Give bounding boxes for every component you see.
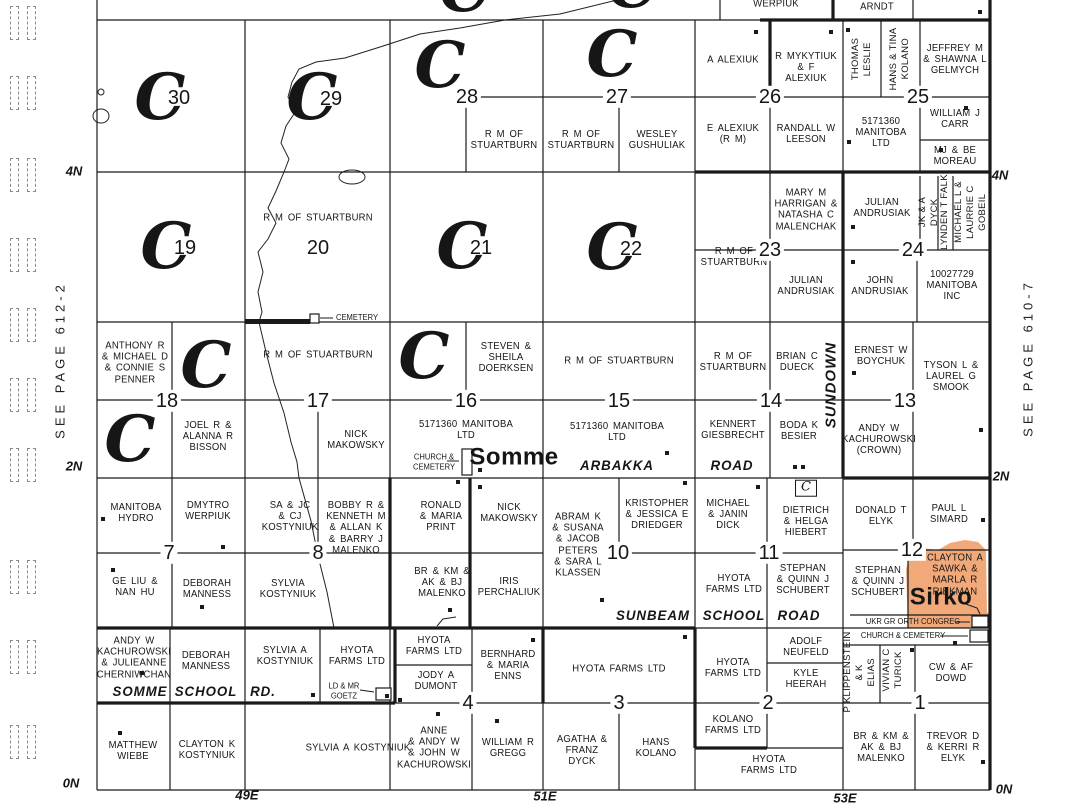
locality-label-somme: Somme xyxy=(469,445,558,472)
owner-label: DEBORAH MANNESS xyxy=(182,650,230,672)
registration-mark xyxy=(10,238,19,272)
row-label-0n-right: 0N xyxy=(996,783,1013,798)
owner-label: STEPHAN & QUINN J SCHUBERT xyxy=(776,563,830,597)
owner-label: BOBBY R & KENNETH M & ALLAN K & BARRY J … xyxy=(326,500,386,556)
owner-label: R M OF STUARTBURN xyxy=(263,349,373,360)
section-number-30: 30 xyxy=(168,87,190,109)
owner-label: STEVEN & SHEILA DOERKSEN xyxy=(479,341,534,375)
registration-mark xyxy=(10,308,19,342)
section-number-10: 10 xyxy=(604,542,632,564)
section-number-14: 14 xyxy=(757,390,785,412)
road-label-sunbeam: SUNBEAM xyxy=(616,608,690,624)
section-number-25: 25 xyxy=(904,86,932,108)
road-label-school2: SCHOOL xyxy=(175,684,238,700)
section-number-7: 7 xyxy=(160,542,177,564)
owner-label: KYLE HEERAH xyxy=(786,668,827,690)
owner-label: RONALD & MARIA PRINT xyxy=(420,500,462,534)
owner-label: JODY A DUMONT xyxy=(415,670,458,692)
registration-mark xyxy=(10,76,19,110)
owner-label: ANDY W KACHUROWSKI (CROWN) xyxy=(842,423,916,457)
owner-label: SA & JC & CJ KOSTYNIUK xyxy=(262,500,319,534)
owner-label: DMYTRO WERPIUK xyxy=(185,500,231,522)
owner-label: DEBORAH MANNESS xyxy=(183,578,231,600)
left-page-ref: SEE PAGE 612-2 xyxy=(53,281,68,439)
owner-label-goetz: LD & MR GOETZ xyxy=(329,681,360,700)
road-label-arbakka: ARBAKKA xyxy=(580,458,654,474)
owner-label: MATTHEW WIEBE xyxy=(109,740,158,762)
owner-label: HYOTA FARMS LTD xyxy=(572,663,665,674)
owner-label: R M OF STUARTBURN xyxy=(700,351,767,373)
section-number-17: 17 xyxy=(304,390,332,412)
section-number-8: 8 xyxy=(309,542,326,564)
owner-label: WILLIAM R GREGG xyxy=(482,737,534,759)
map-labels: ARNDTWERPIUKCCC30C29C28C27R M OF STUARTB… xyxy=(0,0,1071,803)
owner-label-arndt: ARNDT xyxy=(860,1,894,12)
section-number-15: 15 xyxy=(605,390,633,412)
owner-label: BR & KM & AK & BJ MALENKO xyxy=(853,731,908,765)
section-number-19: 19 xyxy=(174,237,196,259)
owner-label: MICHAEL & JANIN DICK xyxy=(706,498,750,532)
registration-mark xyxy=(27,448,36,482)
registration-mark xyxy=(27,308,36,342)
owner-label: NICK MAKOWSKY xyxy=(327,429,384,451)
registration-mark xyxy=(10,560,19,594)
owner-label: BRIAN C DUECK xyxy=(776,351,818,373)
road-label-sundown: SUNDOWN xyxy=(824,342,841,428)
registration-mark xyxy=(10,6,19,40)
section-number-18: 18 xyxy=(153,390,181,412)
row-label-0n-left: 0N xyxy=(63,777,80,792)
owner-label: WILLIAM J CARR xyxy=(930,108,980,130)
owner-label: CLAYTON K KOSTYNIUK xyxy=(179,739,236,761)
crown-c-box: C xyxy=(795,480,817,497)
owner-label: MARY M HARRIGAN & NATASHA C MALENCHAK xyxy=(775,188,838,233)
owner-label: PAUL L SIMARD xyxy=(930,503,968,525)
owner-label: 5171360 MANITOBA LTD xyxy=(856,116,907,150)
owner-label: ANDY W KACHUROWSKI & JULIEANNE CHERNIWCH… xyxy=(97,636,171,681)
registration-mark xyxy=(27,378,36,412)
owner-label: TREVOR D & KERRI R ELYK xyxy=(926,731,979,765)
owner-label: HANS & TINA KOLANO xyxy=(888,28,912,91)
owner-label: R M OF STUARTBURN xyxy=(564,355,674,366)
owner-label: KRISTOPHER & JESSICA E DRIEDGER xyxy=(625,498,689,532)
section-number-11: 11 xyxy=(756,542,783,564)
owner-label: KENNERT GIESBRECHT xyxy=(701,419,765,441)
owner-label: ANTHONY R & MICHAEL D & CONNIE S PENNER xyxy=(102,341,168,386)
section-number-4: 4 xyxy=(459,692,476,714)
owner-label: AGATHA & FRANZ DYCK xyxy=(557,734,607,768)
owner-label: VIVIAN C TURICK xyxy=(881,648,905,691)
owner-label: BR & KM & AK & BJ MALENKO xyxy=(414,566,469,600)
section-number-24: 24 xyxy=(899,239,927,261)
owner-label: CW & AF DOWD xyxy=(929,662,973,684)
col-label-49e: 49E xyxy=(235,789,258,803)
owner-label: BODA K BESIER xyxy=(780,420,818,442)
owner-label: R M OF STUARTBURN xyxy=(263,212,373,223)
owner-label: BERNHARD & MARIA ENNS xyxy=(481,649,536,683)
col-label-51e: 51E xyxy=(533,790,556,803)
right-page-ref: SEE PAGE 610-7 xyxy=(1021,279,1036,437)
owner-label: MJ & BE MOREAU xyxy=(934,145,977,167)
owner-label: SYLVIA A KOSTYNIUK xyxy=(257,645,314,667)
registration-mark xyxy=(27,158,36,192)
crown-c: C xyxy=(399,321,450,393)
section-number-12: 12 xyxy=(898,539,926,561)
owner-label: JEFFREY M & SHAWNA L GELMYCH xyxy=(923,43,986,77)
owner-label: LYNDEN T FALK xyxy=(939,174,951,250)
registration-mark xyxy=(27,76,36,110)
section-number-16: 16 xyxy=(452,390,480,412)
section-number-21: 21 xyxy=(470,237,492,259)
owner-label: WESLEY GUSHULIAK xyxy=(629,129,686,151)
registration-mark xyxy=(10,448,19,482)
owner-label: HYOTA FARMS LTD xyxy=(706,573,762,595)
owner-label: STEPHAN & QUINN J SCHUBERT xyxy=(851,565,905,599)
section-number-27: 27 xyxy=(603,86,631,108)
registration-mark xyxy=(27,640,36,674)
section-number-22: 22 xyxy=(620,238,642,260)
owner-label: ANNE & ANDY W & JOHN W KACHUROWSKI xyxy=(397,726,471,771)
registration-mark xyxy=(27,6,36,40)
section-number-23: 23 xyxy=(756,239,784,261)
section-number-1: 1 xyxy=(911,692,928,714)
owner-label: A ALEXIUK xyxy=(707,54,759,65)
owner-label: 5171360 MANITOBA LTD xyxy=(570,421,664,443)
owner-label: THOMAS LESLIE xyxy=(850,38,874,80)
owner-label: TYSON L & LAUREL G SMOOK xyxy=(924,360,979,394)
church-cemetery-label: CHURCH & CEMETERY xyxy=(413,452,455,471)
owner-label: ERNEST W BOYCHUK xyxy=(854,345,907,367)
owner-label-partial: WERPIUK xyxy=(753,0,799,10)
row-label-2n-right: 2N xyxy=(993,470,1010,485)
road-label-somme: SOMME xyxy=(113,684,168,700)
owner-label: KOLANO FARMS LTD xyxy=(705,714,761,736)
section-number-13: 13 xyxy=(891,390,919,412)
owner-label: GE LIU & NAN HU xyxy=(112,576,157,598)
cadastral-map: ARNDTWERPIUKCCC30C29C28C27R M OF STUARTB… xyxy=(0,0,1071,803)
owner-label: MICHAEL L & LAURRIE C GOBEIL xyxy=(953,181,989,243)
registration-mark xyxy=(10,158,19,192)
owner-label: NICK MAKOWSKY xyxy=(480,502,537,524)
owner-label: P KLIPPENSTEIN & K ELIAS xyxy=(842,631,878,712)
crown-c: C xyxy=(440,0,491,26)
owner-label: 10027729 MANITOBA INC xyxy=(927,269,978,303)
registration-mark xyxy=(10,378,19,412)
crown-c: C xyxy=(587,19,638,91)
owner-label: IRIS PERCHALIUK xyxy=(478,576,541,598)
owner-label: JULIAN ANDRUSIAK xyxy=(853,197,910,219)
section-number-2: 2 xyxy=(759,692,776,714)
owner-label: SYLVIA KOSTYNIUK xyxy=(260,578,317,600)
owner-label: JOEL R & ALANNA R BISSON xyxy=(183,420,233,454)
row-label-4n-left: 4N xyxy=(66,165,83,180)
owner-label: DONALD T ELYK xyxy=(855,505,906,527)
col-label-53e: 53E xyxy=(833,792,856,803)
section-number-3: 3 xyxy=(610,692,627,714)
registration-mark xyxy=(27,560,36,594)
cemetery-label: CEMETERY xyxy=(336,313,378,323)
owner-label: JULIAN ANDRUSIAK xyxy=(777,275,834,297)
owner-label: MANITOBA HYDRO xyxy=(111,502,162,524)
registration-mark xyxy=(10,725,19,759)
owner-label: RANDALL W LEESON xyxy=(777,123,836,145)
owner-label: 5171360 MANITOBA LTD xyxy=(419,419,513,441)
registration-mark xyxy=(27,725,36,759)
owner-label: HANS KOLANO xyxy=(636,737,677,759)
owner-label: R M OF STUARTBURN xyxy=(471,129,538,151)
owner-label: SYLVIA A KOSTYNIUK xyxy=(306,742,411,753)
row-label-4n-right: 4N xyxy=(992,169,1009,184)
road-label-rd: RD. xyxy=(250,684,276,700)
owner-label: HYOTA FARMS LTD xyxy=(705,657,761,679)
road-label-road: ROAD xyxy=(778,608,821,624)
owner-label: ADOLF NEUFELD xyxy=(783,636,829,658)
owner-label: HYOTA FARMS LTD xyxy=(329,645,385,667)
section-number-28: 28 xyxy=(453,86,481,108)
congregation-label: UKR GR ORTH CONGREG xyxy=(866,617,960,627)
locality-label-sirko: Sirko xyxy=(910,585,973,612)
owner-label: JOHN ANDRUSIAK xyxy=(851,275,908,297)
owner-label: HYOTA FARMS LTD xyxy=(406,635,462,657)
owner-label: ABRAM K & SUSANA & JACOB PETERS & SARA L… xyxy=(552,511,603,578)
section-number-29: 29 xyxy=(320,88,342,110)
road-label-school: SCHOOL xyxy=(703,608,766,624)
owner-label: DIETRICH & HELGA HIEBERT xyxy=(783,505,829,539)
crown-c: C xyxy=(105,404,156,476)
registration-mark xyxy=(27,238,36,272)
owner-label: E ALEXIUK (R M) xyxy=(707,123,759,145)
owner-label: JK & A DYCK xyxy=(917,197,941,227)
owner-label: R MYKYTIUK & F ALEXIUK xyxy=(775,51,837,85)
crown-c: C xyxy=(181,330,232,402)
owner-label: R M OF STUARTBURN xyxy=(548,129,615,151)
road-label: ROAD xyxy=(711,458,754,474)
registration-mark xyxy=(10,640,19,674)
section-number-20: 20 xyxy=(307,237,329,259)
section-number-26: 26 xyxy=(756,86,784,108)
row-label-2n-left: 2N xyxy=(66,460,83,475)
owner-label: HYOTA FARMS LTD xyxy=(741,754,797,776)
